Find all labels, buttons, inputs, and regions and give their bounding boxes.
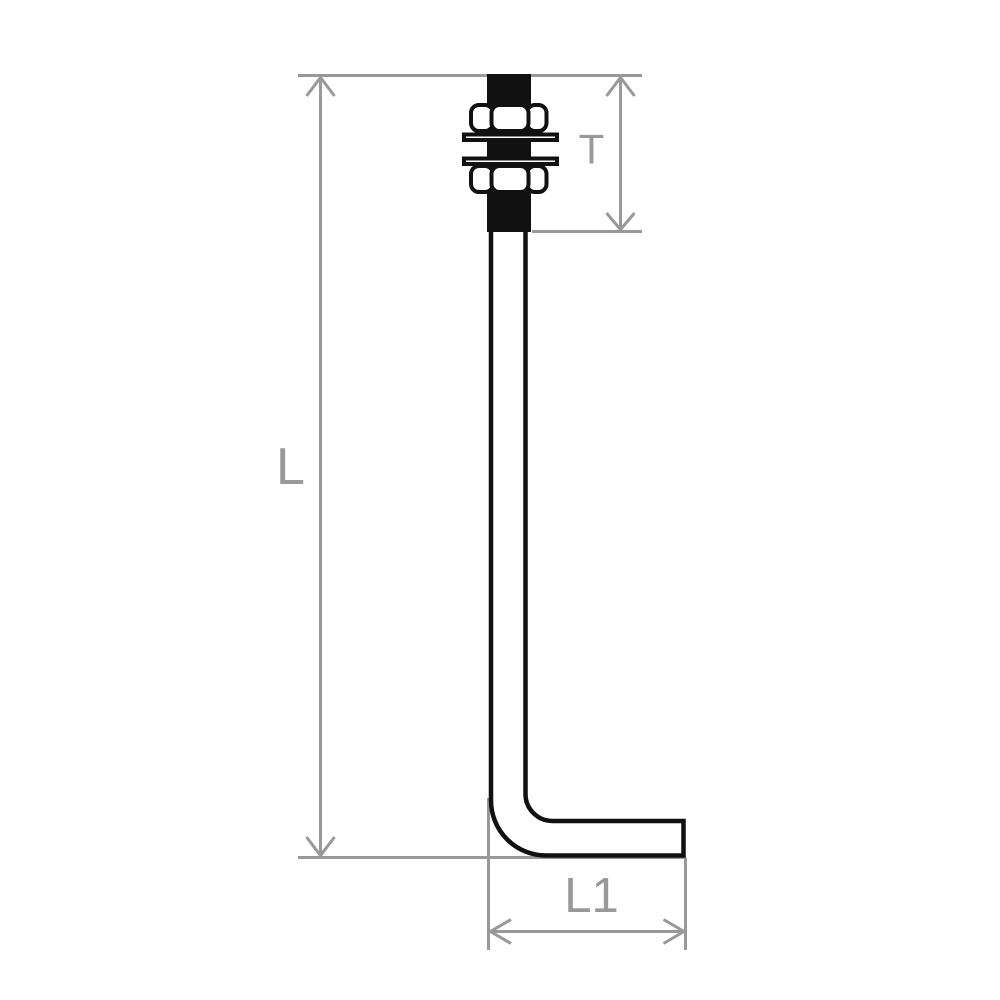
hex-nut-bottom [471, 166, 547, 192]
hex-nut-top [471, 105, 547, 131]
dimension-L1-label: L1 [564, 869, 619, 923]
dimension-T-label: T [579, 126, 605, 173]
hex-nut-center-facet [492, 105, 529, 131]
diagram-page: L T L1 [0, 0, 1000, 1000]
washer-top [464, 135, 557, 141]
dimension-labels: L T L1 [276, 126, 619, 924]
dimension-L-label: L [276, 438, 305, 496]
anchor-bolt-technical-diagram: L T L1 [0, 0, 1000, 1000]
bolt-threaded-section [487, 74, 531, 232]
bolt-shank [491, 228, 684, 856]
hex-nut-center-facet [492, 166, 529, 192]
bolt-drawing [464, 74, 684, 856]
washer-bottom [464, 159, 557, 165]
